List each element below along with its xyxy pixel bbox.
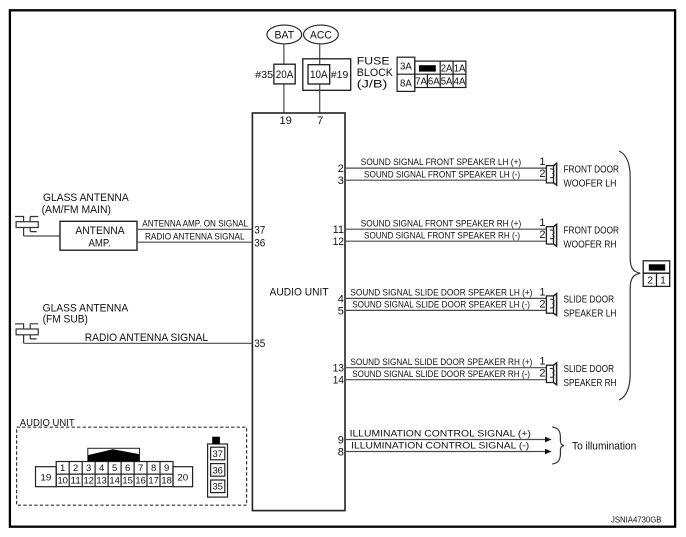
svg-text:3: 3 (338, 175, 344, 187)
svg-text:3A: 3A (400, 61, 412, 72)
svg-text:SOUND SIGNAL SLIDE DOOR SPEAKE: SOUND SIGNAL SLIDE DOOR SPEAKER LH (-) (352, 300, 530, 310)
svg-text:ILLUMINATION CONTROL SIGNAL (+: ILLUMINATION CONTROL SIGNAL (+) (350, 429, 531, 439)
svg-text:SOUND SIGNAL SLIDE DOOR SPEAKE: SOUND SIGNAL SLIDE DOOR SPEAKER RH (-) (352, 369, 530, 379)
svg-text:13: 13 (96, 476, 107, 487)
svg-text:BAT: BAT (275, 29, 295, 41)
svg-text:SOUND SIGNAL SLIDE DOOR SPEAKE: SOUND SIGNAL SLIDE DOOR SPEAKER LH (+) (350, 288, 532, 298)
svg-text:4: 4 (99, 463, 104, 474)
svg-text:ANTENNA: ANTENNA (75, 225, 125, 237)
svg-text:6A: 6A (428, 77, 440, 88)
svg-text:SOUND SIGNAL FRONT SPEAKER RH: SOUND SIGNAL FRONT SPEAKER RH (+) (361, 218, 521, 228)
svg-text:10A: 10A (310, 69, 328, 81)
svg-text:8: 8 (151, 463, 156, 474)
svg-text:8A: 8A (400, 79, 412, 90)
svg-text:SOUND SIGNAL SLIDE DOOR SPEAKE: SOUND SIGNAL SLIDE DOOR SPEAKER RH (+) (350, 357, 532, 367)
svg-text:1: 1 (539, 217, 545, 229)
svg-text:AMP.: AMP. (88, 237, 110, 249)
svg-text:WOOFER RH: WOOFER RH (564, 238, 617, 250)
svg-text:35: 35 (212, 482, 223, 493)
svg-text:2A: 2A (441, 63, 453, 74)
svg-text:11: 11 (70, 476, 81, 487)
svg-text:12: 12 (333, 236, 344, 248)
svg-text:FRONT DOOR: FRONT DOOR (564, 163, 620, 175)
svg-text:ILLUMINATION CONTROL SIGNAL (-: ILLUMINATION CONTROL SIGNAL (-) (351, 441, 529, 451)
svg-text:7: 7 (317, 115, 323, 127)
svg-text:1A: 1A (454, 63, 466, 74)
svg-text:15: 15 (122, 476, 133, 487)
svg-text:#19: #19 (331, 69, 349, 81)
svg-text:5A: 5A (441, 77, 453, 88)
svg-text:5: 5 (112, 463, 117, 474)
svg-text:WOOFER LH: WOOFER LH (564, 177, 617, 189)
svg-text:5: 5 (338, 305, 344, 317)
svg-text:RADIO ANTENNA SIGNAL: RADIO ANTENNA SIGNAL (85, 332, 208, 344)
svg-text:20: 20 (177, 473, 188, 484)
svg-text:2: 2 (539, 368, 545, 380)
svg-text:AUDIO UNIT: AUDIO UNIT (270, 286, 329, 298)
svg-text:SLIDE DOOR: SLIDE DOOR (564, 294, 615, 306)
svg-text:1: 1 (539, 286, 545, 298)
svg-text:SPEAKER LH: SPEAKER LH (564, 308, 617, 320)
svg-text:SLIDE DOOR: SLIDE DOOR (564, 363, 615, 375)
svg-text:1: 1 (539, 356, 545, 368)
svg-text:37: 37 (212, 449, 223, 460)
svg-text:4A: 4A (454, 77, 466, 88)
svg-text:6: 6 (125, 463, 130, 474)
svg-text:14: 14 (333, 375, 344, 387)
svg-text:SOUND SIGNAL FRONT SPEAKER RH: SOUND SIGNAL FRONT SPEAKER RH (-) (364, 230, 520, 240)
svg-text:35: 35 (254, 338, 265, 350)
svg-text:FRONT DOOR: FRONT DOOR (564, 224, 620, 236)
svg-text:SOUND SIGNAL FRONT SPEAKER LH: SOUND SIGNAL FRONT SPEAKER LH (-) (364, 169, 520, 179)
svg-text:FUSE: FUSE (357, 55, 390, 67)
svg-text:16: 16 (135, 476, 146, 487)
svg-text:37: 37 (254, 224, 265, 236)
svg-text:19: 19 (40, 473, 51, 484)
svg-text:18: 18 (161, 476, 172, 487)
svg-text:9: 9 (164, 463, 169, 474)
svg-text:SPEAKER RH: SPEAKER RH (564, 377, 617, 389)
svg-text:2: 2 (73, 463, 78, 474)
svg-text:4: 4 (338, 293, 344, 305)
svg-text:(FM SUB): (FM SUB) (43, 313, 88, 325)
svg-text:2: 2 (539, 229, 545, 241)
svg-text:(J/B): (J/B) (357, 78, 388, 90)
svg-text:3: 3 (86, 463, 91, 474)
svg-text:JSNIA4730GB: JSNIA4730GB (611, 514, 662, 524)
svg-text:11: 11 (333, 224, 344, 236)
svg-text:8: 8 (338, 446, 344, 458)
svg-text:20A: 20A (276, 69, 294, 81)
svg-text:17: 17 (148, 476, 159, 487)
svg-text:2: 2 (338, 163, 344, 175)
svg-text:ANTENNA AMP. ON SIGNAL: ANTENNA AMP. ON SIGNAL (142, 218, 248, 228)
svg-text:SOUND SIGNAL FRONT SPEAKER LH: SOUND SIGNAL FRONT SPEAKER LH (+) (361, 157, 521, 167)
svg-text:GLASS ANTENNA: GLASS ANTENNA (43, 192, 129, 204)
svg-text:2: 2 (539, 298, 545, 310)
svg-text:1: 1 (539, 156, 545, 168)
svg-text:2: 2 (647, 276, 653, 287)
svg-text:12: 12 (83, 476, 94, 487)
svg-text:1: 1 (660, 276, 666, 287)
svg-text:AUDIO UNIT: AUDIO UNIT (20, 417, 75, 429)
svg-text:2: 2 (539, 168, 545, 180)
svg-text:1: 1 (60, 463, 65, 474)
svg-text:36: 36 (254, 237, 265, 249)
svg-text:RADIO ANTENNA SIGNAL: RADIO ANTENNA SIGNAL (145, 231, 245, 241)
svg-text:7A: 7A (415, 77, 427, 88)
svg-text:10: 10 (57, 476, 68, 487)
svg-text:36: 36 (212, 465, 223, 476)
svg-text:ACC: ACC (310, 29, 332, 41)
svg-text:BLOCK: BLOCK (357, 67, 394, 79)
svg-text:14: 14 (109, 476, 120, 487)
svg-text:19: 19 (279, 115, 292, 127)
svg-text:7: 7 (138, 463, 143, 474)
svg-text:#35: #35 (255, 69, 273, 81)
svg-text:13: 13 (333, 363, 344, 375)
svg-text:To illumination: To illumination (572, 441, 636, 453)
svg-text:(AM/FM MAIN): (AM/FM MAIN) (42, 204, 111, 216)
svg-text:9: 9 (338, 434, 344, 446)
